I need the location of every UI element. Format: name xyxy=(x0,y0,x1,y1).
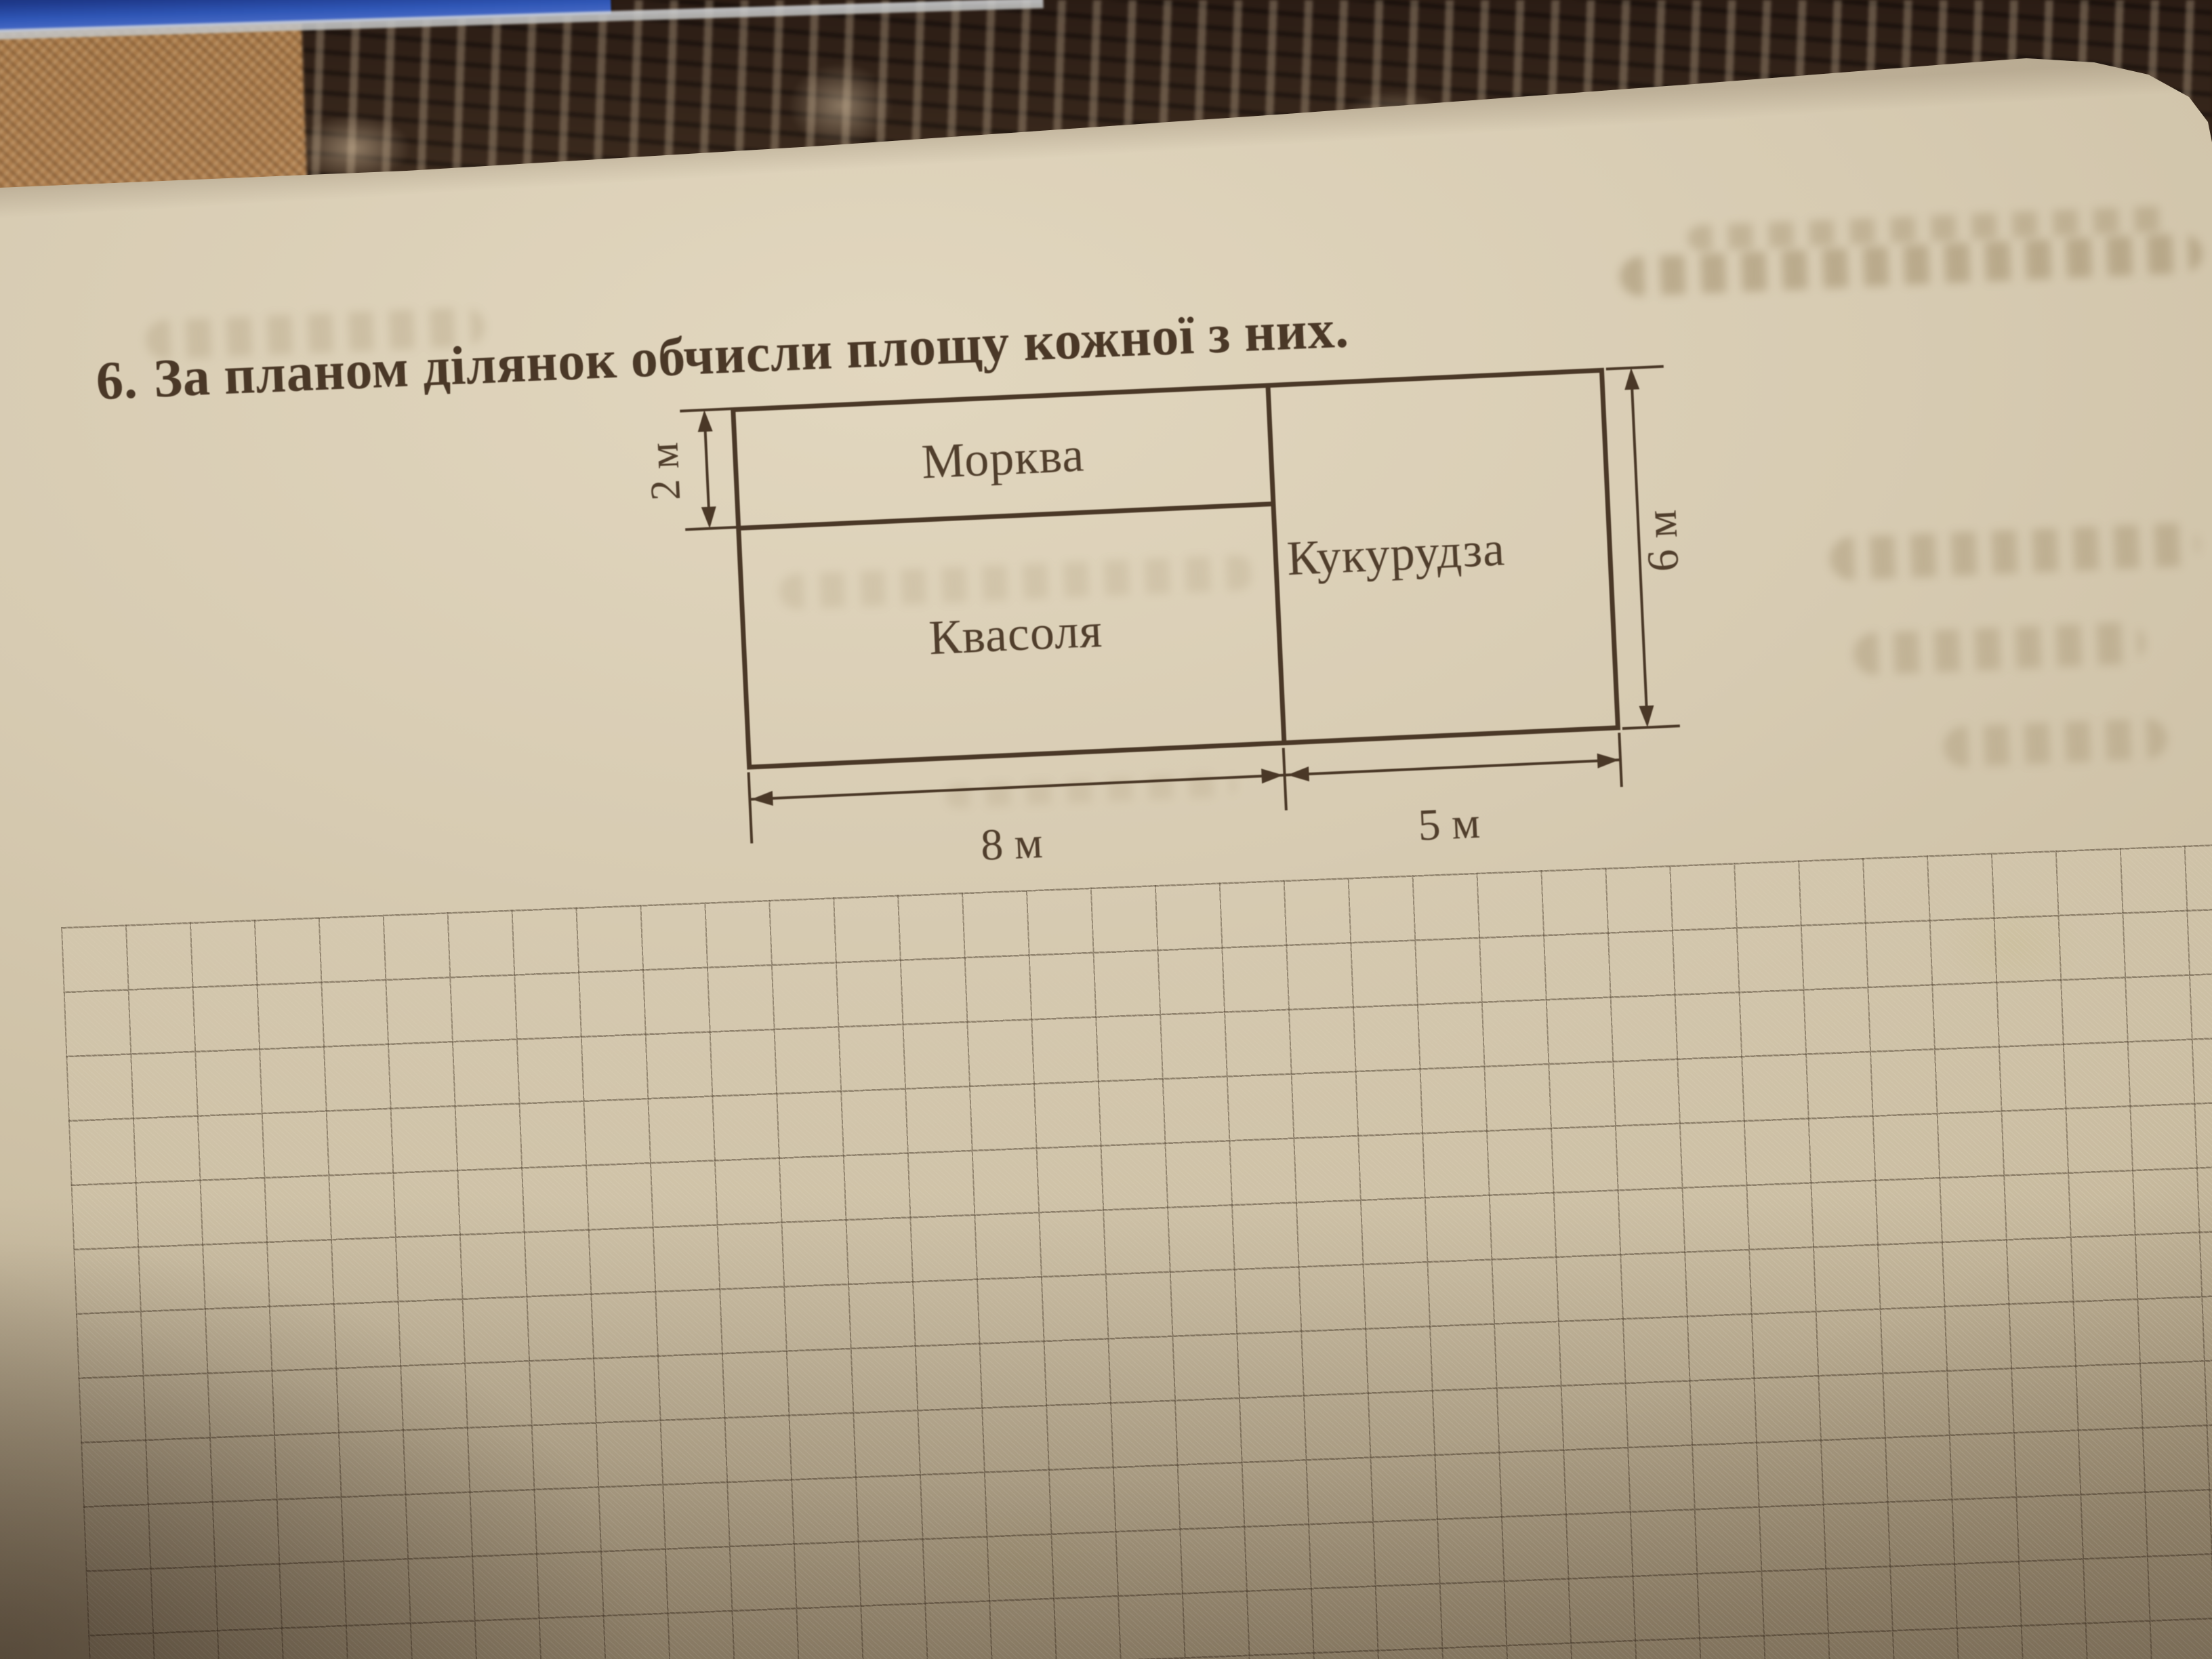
arrowhead-right xyxy=(1597,752,1620,768)
arrowhead-down xyxy=(1639,705,1654,728)
dimension-arrow-line xyxy=(1286,758,1619,776)
plot-plan-diagram: Морква Квасоля Кукурудза 2 м 6 м xyxy=(644,344,1751,921)
bleedthrough-mark xyxy=(1943,718,2168,768)
arrowhead-left xyxy=(751,791,773,806)
dimension-arrow-line xyxy=(703,417,711,520)
notebook-page: 6.За планом ділянок обчисли площу кожної… xyxy=(0,0,2212,1659)
dimension-label-8m: 8 м xyxy=(949,817,1073,872)
dimension-label-5m: 5 м xyxy=(1387,798,1511,852)
arrowhead-right xyxy=(1261,768,1284,783)
textbook-photo: 6.За планом ділянок обчисли площу кожної… xyxy=(0,0,2212,1659)
bleedthrough-mark xyxy=(1829,523,2200,581)
arrowhead-up xyxy=(1624,367,1639,390)
dimension-label-2m: 2 м xyxy=(640,430,691,513)
dimension-label-6m: 6 м xyxy=(1637,499,1688,582)
arrowhead-down xyxy=(701,506,717,529)
bleedthrough-mark xyxy=(1853,621,2146,676)
graph-paper-grid xyxy=(61,838,2212,1659)
problem-number: 6. xyxy=(95,350,139,411)
arrowhead-left xyxy=(1287,766,1309,782)
arrowhead-up xyxy=(697,409,712,432)
dimension-arrow-line xyxy=(751,774,1283,801)
extension-line xyxy=(747,772,754,843)
